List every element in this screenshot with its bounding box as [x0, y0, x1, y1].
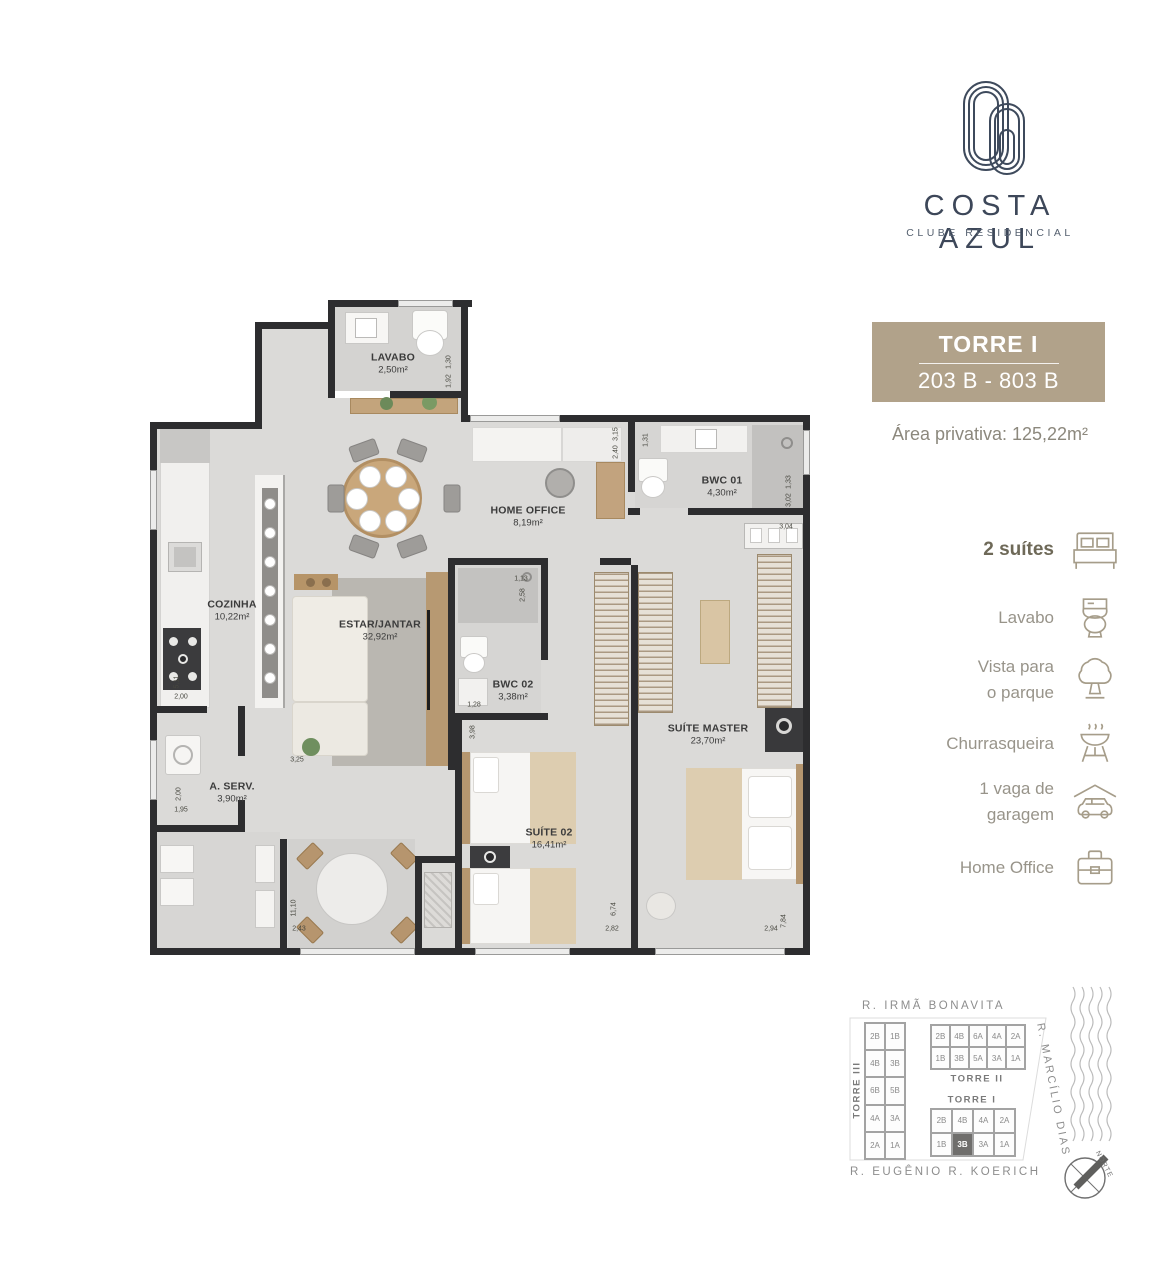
living-console — [294, 574, 338, 590]
window — [300, 948, 415, 955]
kitchen-upper-cabinet — [160, 429, 210, 463]
dimension-label: 1,13 — [514, 576, 528, 583]
bwc01-toilet-bowl — [641, 476, 665, 498]
unit-cell: 2B — [931, 1109, 952, 1133]
master-pillow — [748, 776, 792, 818]
lamp — [484, 851, 496, 863]
wall — [600, 558, 631, 565]
plant — [380, 397, 393, 410]
divider — [919, 363, 1059, 364]
wall — [280, 839, 287, 948]
window — [655, 948, 785, 955]
private-area: Área privativa: 125,22m² — [840, 424, 1140, 445]
feature-label: 2 suítes — [983, 539, 1054, 560]
deco-bowl — [306, 578, 315, 587]
wall — [390, 391, 468, 398]
unit-cell: 4A — [987, 1025, 1006, 1047]
street-bottom: R. EUGÊNIO R. KOERICH — [850, 1166, 1041, 1178]
pouf — [646, 892, 676, 920]
closet-bench — [700, 600, 730, 664]
dimension-label: 3,25 — [290, 757, 304, 764]
dimension-label: 3,02 — [786, 493, 793, 507]
island-dot — [264, 643, 276, 655]
washer-door — [173, 745, 193, 765]
wall — [631, 565, 638, 948]
feature-label: Home Office — [960, 858, 1054, 877]
dimension-label: 2,82 — [605, 926, 619, 933]
wall — [541, 565, 548, 660]
plate — [398, 488, 420, 510]
north-compass-icon — [1058, 1150, 1118, 1210]
wall — [628, 422, 635, 492]
lavabo-sink-basin — [355, 318, 377, 338]
unit-cell: 1B — [931, 1047, 950, 1069]
tv-screen — [427, 610, 430, 710]
closet-drawer — [750, 528, 762, 543]
wall — [455, 720, 462, 948]
plate — [385, 510, 407, 532]
briefcase-icon — [1070, 845, 1120, 891]
car-icon — [1070, 779, 1120, 825]
master-headboard — [796, 764, 803, 884]
island-dot — [264, 614, 276, 626]
unit-cell: 2A — [994, 1109, 1015, 1133]
plant — [302, 738, 320, 756]
island-dot — [264, 672, 276, 684]
wall — [461, 300, 468, 422]
wardrobe-master-left — [638, 572, 673, 713]
window — [803, 430, 810, 475]
tower-grid-i: 2B4B4A2A1B3B3A1A — [930, 1108, 1016, 1157]
lavabo-toilet-bowl — [416, 330, 444, 356]
window — [150, 470, 157, 530]
dimension-label: 1,30 — [446, 355, 453, 369]
window — [150, 740, 157, 800]
toilet-icon — [1070, 595, 1120, 641]
wall — [803, 415, 810, 955]
office-desk — [472, 427, 562, 462]
wall — [448, 558, 548, 565]
dimension-label: 3,04 — [779, 524, 793, 531]
wall — [415, 856, 462, 863]
dimension-label: 7,84 — [781, 914, 788, 928]
bed-icon — [1070, 527, 1120, 573]
wall — [628, 508, 640, 515]
feature-label: 1 vaga de — [979, 779, 1054, 798]
wall — [238, 706, 245, 756]
dimension-label: 2,00 — [174, 694, 188, 701]
wall — [328, 300, 335, 398]
unit-cell: 2B — [931, 1025, 950, 1047]
plate — [385, 466, 407, 488]
s2-headboard — [462, 868, 470, 944]
plate — [346, 488, 368, 510]
window — [470, 415, 560, 422]
doormat — [424, 872, 452, 928]
wall — [415, 863, 422, 948]
shelf — [160, 878, 194, 906]
room-label-suite-master: SUÍTE MASTER 23,70m² — [668, 723, 749, 748]
wall — [150, 422, 262, 429]
office-chair — [545, 468, 575, 498]
s2-headboard — [462, 752, 470, 844]
feature-label: Vista para — [978, 657, 1054, 676]
wall — [255, 322, 262, 429]
dimension-label: 1,31 — [643, 433, 650, 447]
room-label-home-office: HOME OFFICE 8,19m² — [490, 505, 565, 530]
ac-unit — [255, 890, 275, 928]
unit-cell: 6A — [969, 1025, 988, 1047]
unit-range: 203 B - 803 B — [872, 368, 1105, 394]
unit-cell: 1A — [885, 1132, 905, 1159]
room-label-aserv: A. SERV. 3,90m² — [209, 781, 254, 806]
unit-cell: 4B — [950, 1025, 969, 1047]
unit-cell: 4A — [973, 1109, 994, 1133]
tower-label-i: TORRE I — [948, 1095, 997, 1106]
plate — [359, 466, 381, 488]
dining-chair — [328, 485, 345, 513]
unit-cell: 5A — [969, 1047, 988, 1069]
bwc01-sink — [695, 429, 717, 449]
unit-cell: 2B — [865, 1023, 885, 1050]
unit-cell: 1A — [994, 1133, 1015, 1157]
plate — [359, 510, 381, 532]
burner — [169, 637, 178, 646]
dimension-label: 1,28 — [467, 702, 481, 709]
burner — [188, 637, 197, 646]
dining-chair — [444, 485, 461, 513]
feature-label: Churrasqueira — [946, 734, 1054, 753]
sofa — [292, 596, 368, 702]
floor-entry — [262, 329, 335, 422]
unit-cell: 4B — [952, 1109, 973, 1133]
island-dot — [264, 498, 276, 510]
island-dot — [264, 527, 276, 539]
window — [398, 300, 453, 307]
unit-cell: 5B — [885, 1077, 905, 1104]
dimension-label: 1,33 — [786, 475, 793, 489]
unit-cell: 3B — [885, 1050, 905, 1077]
wall — [157, 706, 207, 713]
tower-grid-ii: 2B4B6A4A2A1B3B5A3A1A — [930, 1024, 1026, 1070]
unit-cell: 4B — [865, 1050, 885, 1077]
burner — [178, 654, 188, 664]
feature-garagem: 1 vaga de garagem — [860, 778, 1120, 826]
tower-grid-iii: 2B1B4B3B6B5B4A3A2A1A — [864, 1022, 906, 1160]
unit-cell: 1B — [885, 1023, 905, 1050]
speaker — [776, 718, 792, 734]
feature-suites: 2 suítes — [860, 526, 1120, 574]
unit-cell: 3A — [885, 1105, 905, 1132]
dimension-label: 5,11 — [174, 675, 181, 688]
wall — [448, 558, 455, 770]
wall — [157, 825, 245, 832]
brand-tagline: CLUBE RESIDENCIAL — [875, 227, 1105, 239]
burner — [188, 672, 197, 681]
dimension-label: 1,92 — [446, 374, 453, 388]
unit-cell: 3A — [987, 1047, 1006, 1069]
s2-pillow — [473, 757, 499, 793]
feature-vista: Vista para o parque — [860, 656, 1120, 704]
tower-label-iii: TORRE III — [852, 1061, 863, 1118]
unit-card: TORRE I 203 B - 803 B — [872, 322, 1105, 402]
hall-cabinet-wood — [596, 462, 625, 519]
window — [475, 948, 570, 955]
ac-unit — [255, 845, 275, 883]
unit-cell: 3B — [952, 1133, 973, 1157]
wardrobe-master-right — [757, 554, 792, 708]
unit-cell: 4A — [865, 1105, 885, 1132]
entry-console — [350, 398, 458, 414]
island-dot — [264, 585, 276, 597]
brand-name: COSTA AZUL — [875, 190, 1105, 256]
shelf — [160, 845, 194, 873]
deco-bowl — [322, 578, 331, 587]
room-label-lavabo: LAVABO 2,50m² — [371, 352, 415, 377]
dimension-label: 6,74 — [611, 902, 618, 916]
tower-title: TORRE I — [872, 331, 1105, 358]
wall — [688, 508, 803, 515]
room-label-cozinha: COZINHA 10,22m² — [207, 599, 256, 624]
dimension-label: 2,58 — [520, 588, 527, 602]
feature-label: o parque — [987, 683, 1054, 702]
dimension-label: 2,94 — [764, 926, 778, 933]
unit-cell: 3A — [973, 1133, 994, 1157]
dimension-label: 2,43 — [292, 926, 306, 933]
island-dot — [264, 556, 276, 568]
wardrobe-suite02 — [594, 572, 629, 726]
s2-blanket — [530, 868, 576, 944]
dimension-label: 2,40 — [613, 445, 620, 459]
tree-icon — [1070, 657, 1120, 703]
unit-cell: 1A — [1006, 1047, 1025, 1069]
dimension-label: 3,98 — [470, 725, 477, 739]
s2-pillow — [473, 873, 499, 905]
unit-cell: 3B — [950, 1047, 969, 1069]
room-label-bwc01: BWC 01 4,30m² — [702, 475, 743, 500]
room-label-bwc02: BWC 02 3,38m² — [493, 679, 534, 704]
unit-cell: 6B — [865, 1077, 885, 1104]
unit-cell: 2A — [865, 1132, 885, 1159]
room-label-estar: ESTAR/JANTAR 32,92m² — [339, 619, 421, 644]
unit-cell: 2A — [1006, 1025, 1025, 1047]
feature-label: Lavabo — [998, 608, 1054, 627]
kitchen-sink-basin — [174, 547, 196, 567]
costa-azul-logo-icon — [938, 72, 1042, 184]
room-label-suite02: SUÍTE 02 16,41m² — [525, 827, 572, 852]
feature-home-office: Home Office — [860, 844, 1120, 892]
dimension-label: 11,10 — [291, 900, 298, 917]
feature-lavabo: Lavabo — [860, 594, 1120, 642]
closet-drawer — [768, 528, 780, 543]
shower-bwc01 — [752, 425, 803, 508]
shower-head — [781, 437, 793, 449]
feature-label: garagem — [987, 805, 1054, 824]
grill-icon — [1070, 721, 1120, 767]
street-top: R. IRMÃ BONAVITA — [862, 1000, 1005, 1012]
feature-churrasqueira: Churrasqueira — [860, 720, 1120, 768]
unit-cell: 1B — [931, 1133, 952, 1157]
dimension-label: 3,15 — [613, 427, 620, 441]
dimension-label: 2,00 — [176, 787, 183, 801]
master-blanket — [686, 768, 742, 880]
water-waves — [1068, 985, 1120, 1151]
bwc02-toilet-bowl — [463, 653, 485, 673]
wall — [255, 322, 335, 329]
tower-label-ii: TORRE II — [951, 1074, 1004, 1085]
wall — [448, 713, 548, 720]
master-pillow — [748, 826, 792, 870]
dimension-label: 1,95 — [174, 807, 188, 814]
terrace-table — [316, 853, 388, 925]
